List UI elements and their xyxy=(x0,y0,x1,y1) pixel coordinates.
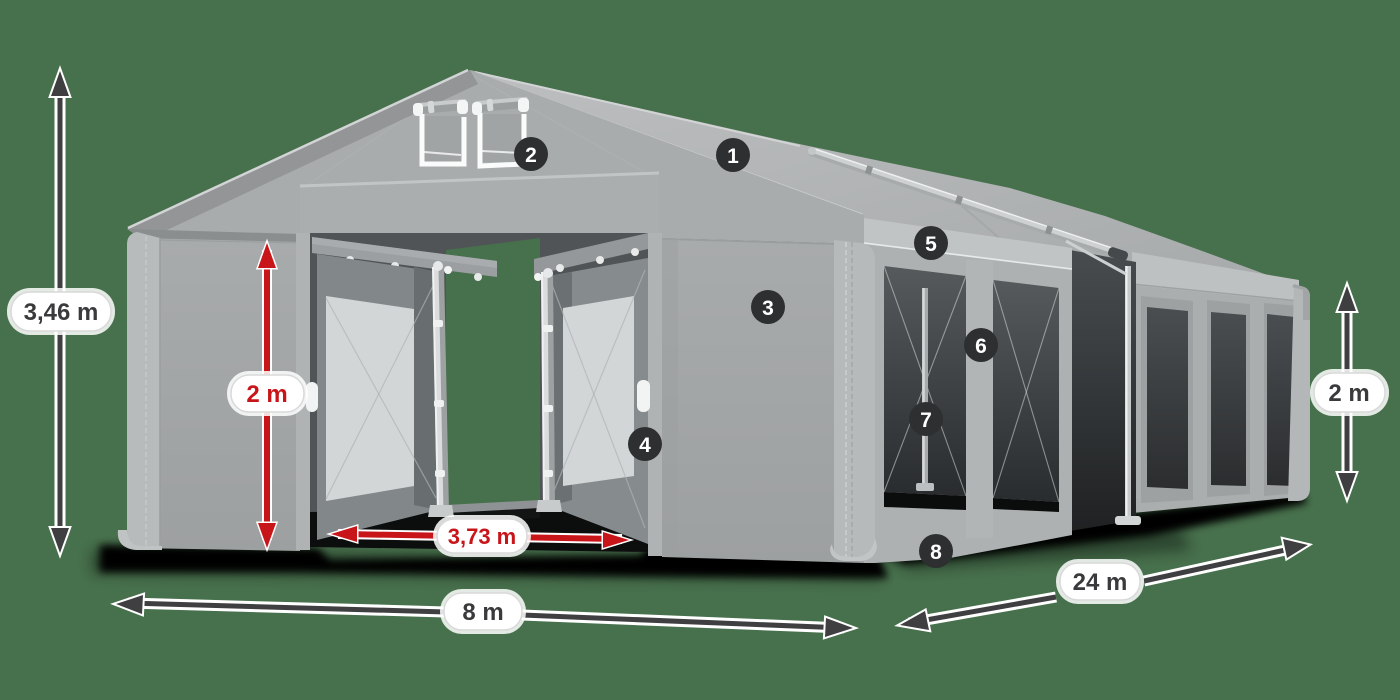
svg-text:8: 8 xyxy=(930,541,942,564)
svg-text:24 m: 24 m xyxy=(1073,569,1128,596)
svg-text:5: 5 xyxy=(925,233,937,256)
svg-text:1: 1 xyxy=(727,145,739,168)
svg-text:6: 6 xyxy=(975,335,987,358)
svg-text:3,73 m: 3,73 m xyxy=(448,524,517,549)
svg-text:3,46 m: 3,46 m xyxy=(24,299,99,326)
svg-text:4: 4 xyxy=(639,434,651,457)
svg-text:8 m: 8 m xyxy=(462,599,503,626)
svg-text:2 m: 2 m xyxy=(1328,380,1369,407)
svg-text:2: 2 xyxy=(525,144,537,167)
svg-text:7: 7 xyxy=(920,409,932,432)
svg-text:3: 3 xyxy=(762,297,774,320)
svg-text:2 m: 2 m xyxy=(246,381,287,408)
